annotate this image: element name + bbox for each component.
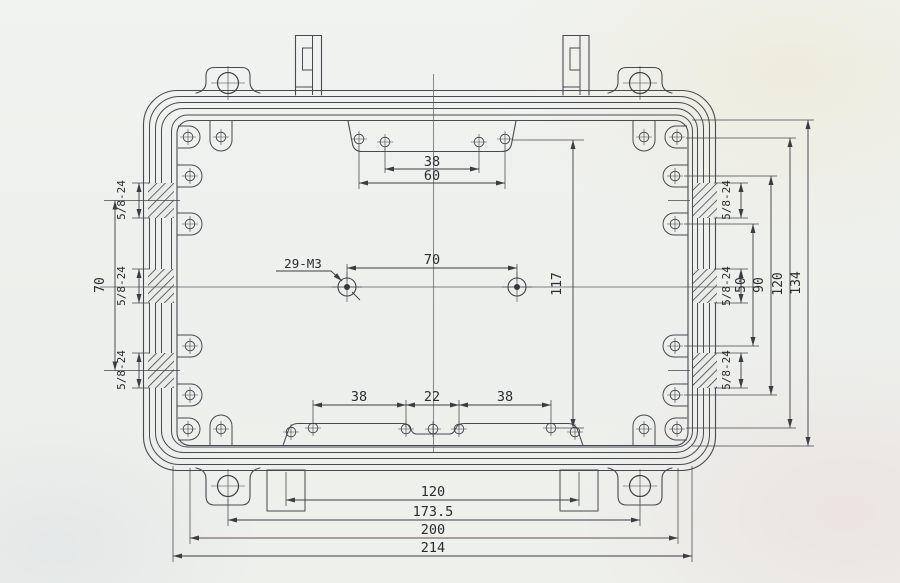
dim-bottom-center: 22 (424, 389, 440, 405)
ear-hole-top-right (623, 66, 657, 100)
screw-holes (180, 66, 685, 503)
ear-hole-bottom-right (623, 469, 657, 503)
dim-right-opening: 134 (789, 271, 804, 295)
port-thread-label-right-bottom: 5/8-24 (720, 350, 733, 390)
dim-top-outer: 60 (424, 168, 440, 184)
port-right-mid (693, 269, 717, 303)
dim-right-inner: 50 (734, 277, 749, 293)
ear-hole-top-left (211, 66, 245, 100)
dim-bottom-left: 38 (351, 389, 367, 405)
port-thread-label-left-top: 5/8-24 (115, 180, 128, 220)
bracket-top (348, 121, 516, 152)
dim-chain-feet: 120 (421, 484, 445, 500)
dim-chain-ears: 173.5 (413, 504, 454, 520)
threaded-ports (148, 183, 717, 388)
dim-chain-overall: 214 (421, 540, 445, 556)
port-thread-label-right-mid: 5/8-24 (720, 266, 733, 306)
port-left-mid (148, 269, 174, 303)
dim-chain-body: 200 (421, 522, 445, 538)
dim-left-ports: 70 (93, 277, 108, 293)
callout-mounting-holes: 29-M3 (284, 256, 322, 271)
hinge-tab-left (296, 36, 322, 96)
hinge-tab-right (563, 36, 589, 96)
port-right-top (693, 183, 717, 218)
dim-center-span: 70 (424, 252, 440, 268)
dim-bottom-right: 38 (497, 389, 513, 405)
port-thread-label-left-bottom: 5/8-24 (115, 350, 128, 390)
port-thread-label-left-mid: 5/8-24 (115, 266, 128, 306)
port-thread-label-right-top: 5/8-24 (720, 180, 733, 220)
dim-right-mid: 90 (752, 277, 767, 293)
enclosure-technical-drawing: 38 60 70 29-M3 117 70 5/8-24 5/8-24 5/8-… (0, 0, 900, 583)
port-right-bottom (693, 353, 717, 388)
enclosure-body (144, 36, 716, 512)
drawing-sheet: 38 60 70 29-M3 117 70 5/8-24 5/8-24 5/8-… (0, 0, 900, 583)
wall-lugs (177, 165, 688, 406)
ear-hole-bottom-left (211, 469, 245, 503)
dim-center-height: 117 (550, 272, 565, 295)
dim-right-outer: 120 (771, 272, 786, 295)
